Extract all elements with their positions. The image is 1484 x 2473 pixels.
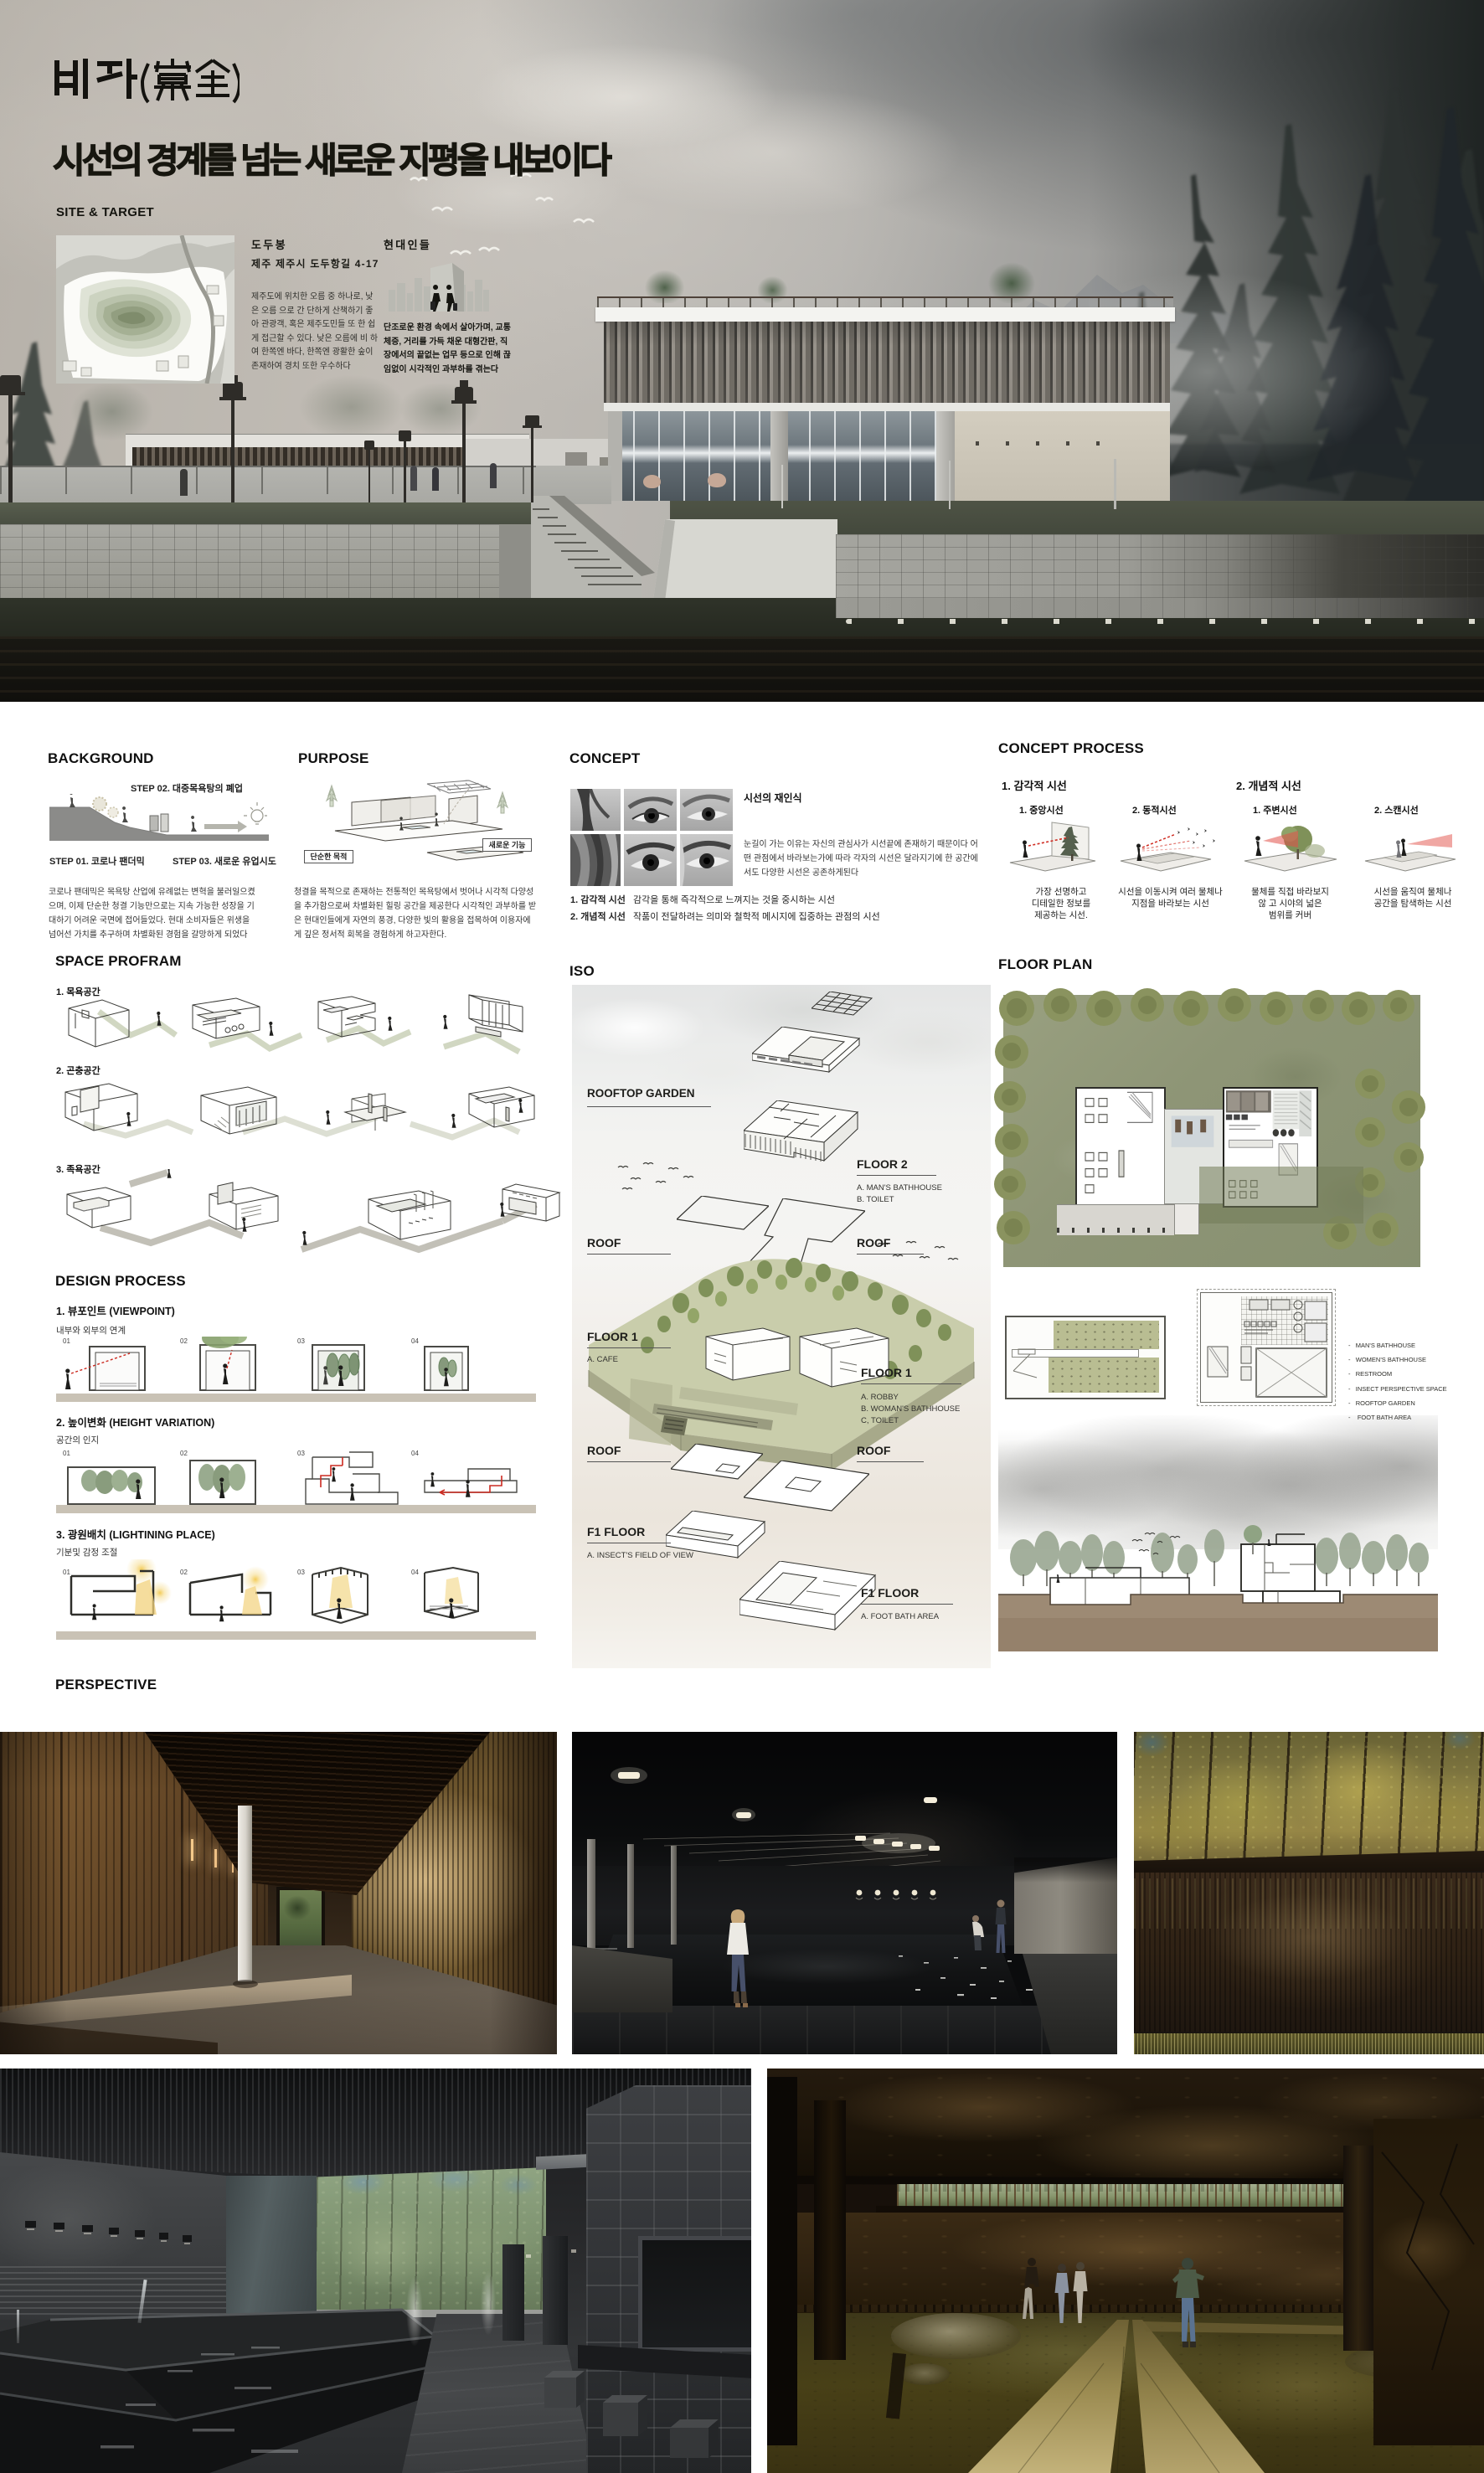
svg-text:02: 02 <box>180 1450 188 1457</box>
svg-text:02: 02 <box>180 1569 188 1576</box>
svg-text:01: 01 <box>63 1337 70 1345</box>
svg-text:03: 03 <box>297 1337 305 1345</box>
svg-text:01: 01 <box>63 1569 70 1576</box>
svg-text:01: 01 <box>63 1450 70 1457</box>
svg-text:03: 03 <box>297 1569 305 1576</box>
svg-text:04: 04 <box>411 1337 419 1345</box>
svg-text:04: 04 <box>411 1450 419 1457</box>
svg-text:02: 02 <box>180 1337 188 1345</box>
svg-text:04: 04 <box>411 1569 419 1576</box>
svg-text:03: 03 <box>297 1450 305 1457</box>
